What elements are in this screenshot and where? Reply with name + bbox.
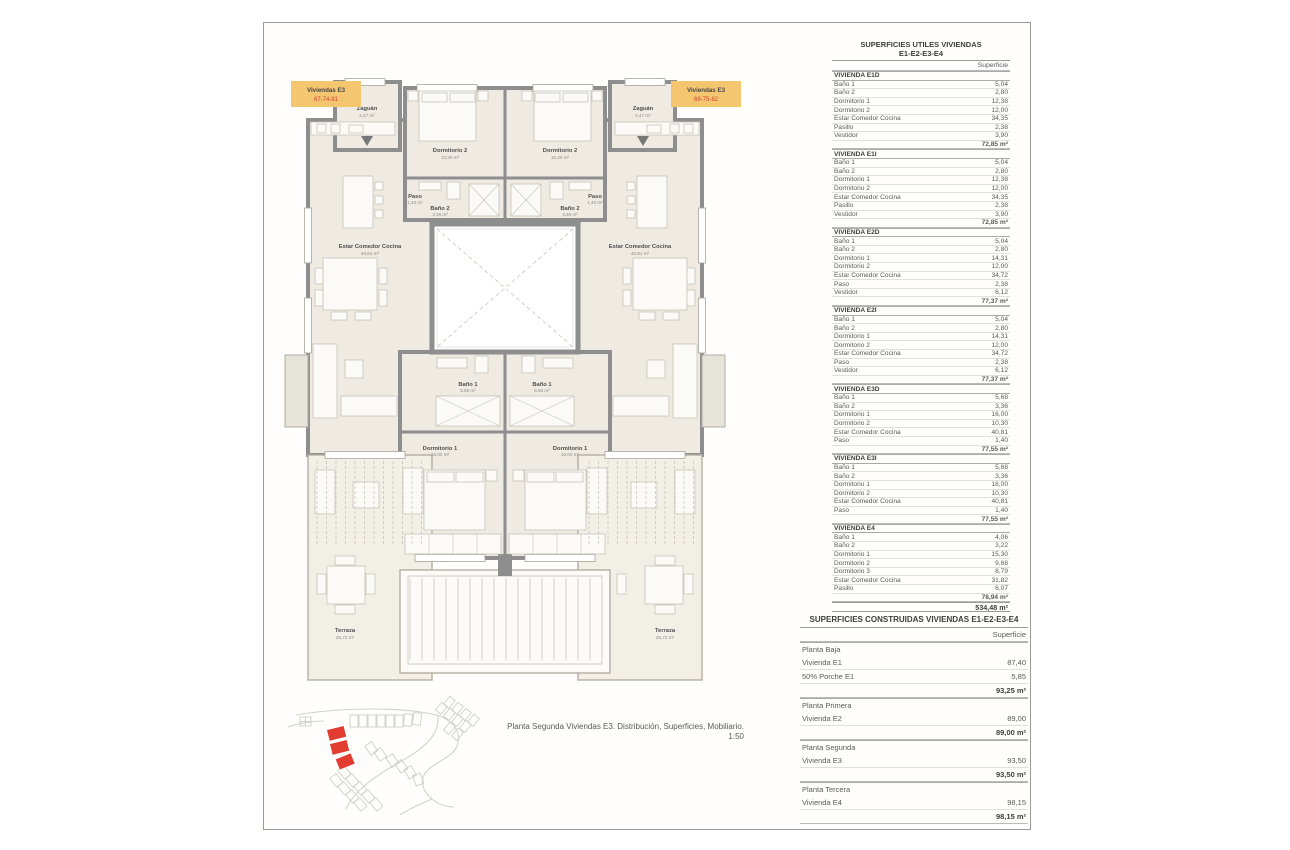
row-label: Vestidor <box>834 211 858 218</box>
svg-text:10,30 m²: 10,30 m² <box>551 155 570 160</box>
row-label: VIVIENDA E1D <box>834 72 880 79</box>
table-row: 78,94 m² <box>832 594 1010 603</box>
table-row: Dormitorio 1 16,00 <box>832 411 1010 420</box>
room-label-estar-right: Estar Comedor Cocina <box>609 244 672 250</box>
row-value: 12,00 <box>991 185 1008 192</box>
table-row: 93,25 m² <box>800 684 1028 698</box>
table-row: Estar Comedor Cocina 34,35 <box>832 115 1010 124</box>
row-value: 34,72 <box>991 350 1008 357</box>
caption: Planta Segunda Viviendas E3. Distribució… <box>498 722 744 742</box>
row-label: Dormitorio 2 <box>834 490 870 497</box>
row-label: Baño 1 <box>834 464 855 471</box>
table-row: Estar Comedor Cocina 40,81 <box>832 498 1010 507</box>
svg-text:40,81 m²: 40,81 m² <box>361 251 380 256</box>
row-label: Dormitorio 2 <box>834 185 870 192</box>
table-row: Vivienda E3 93,50 <box>800 754 1028 768</box>
row-label: Baño 2 <box>834 325 855 332</box>
row-value: 10,30 <box>991 490 1008 497</box>
row-label: Dormitorio 2 <box>834 560 870 567</box>
row-value: 93,50 <box>1007 756 1026 765</box>
row-value: 1,40 <box>995 437 1008 444</box>
row-label: Baño 2 <box>834 246 855 253</box>
table-row: Vivienda E2 89,00 <box>800 712 1028 726</box>
table-row: Paso 1,40 <box>832 437 1010 446</box>
room-label-terraza-left: Terraza <box>335 628 356 634</box>
table-row: Vestidor 6,12 <box>832 367 1010 376</box>
table-row: Dormitorio 1 12,38 <box>832 176 1010 185</box>
table-row: VIVIENDA E3D <box>832 384 1010 394</box>
row-label: Vivienda E4 <box>802 798 842 807</box>
table-row: Dormitorio 1 12,38 <box>832 98 1010 107</box>
row-label: VIVIENDA E3D <box>834 386 880 393</box>
balcony-right <box>702 355 725 427</box>
row-label: Vestidor <box>834 132 858 139</box>
row-label: Dormitorio 2 <box>834 420 870 427</box>
table-row: Baño 2 3,22 <box>832 542 1010 551</box>
row-value: 12,00 <box>991 107 1008 114</box>
built-table-rows: Planta Baja Vivienda E1 87,40 50% Porche… <box>800 642 1028 824</box>
table-row: VIVIENDA E3I <box>832 454 1010 464</box>
row-value: 12,00 <box>991 342 1008 349</box>
table-row: Baño 1 5,68 <box>832 394 1010 403</box>
row-label: Dormitorio 1 <box>834 255 870 262</box>
table-row: Vivienda E1 87,40 <box>800 656 1028 670</box>
table-row: Baño 2 2,80 <box>832 89 1010 98</box>
row-label: Dormitorio 1 <box>834 176 870 183</box>
table-row: VIVIENDA E4 <box>832 524 1010 534</box>
svg-text:2,47 m²: 2,47 m² <box>635 113 651 118</box>
row-value: 4,06 <box>995 534 1008 541</box>
site-highlight-buildings <box>327 726 355 770</box>
row-value: 6,07 <box>995 585 1008 592</box>
site-plan-thumbnail <box>288 695 480 815</box>
row-value: 89,00 m² <box>996 728 1026 737</box>
row-value: 31,82 <box>991 577 1008 584</box>
svg-text:2,47 m²: 2,47 m² <box>359 113 375 118</box>
table-row: Dormitorio 2 12,00 <box>832 341 1010 350</box>
row-label: Paso <box>834 437 849 444</box>
row-value: 93,50 m² <box>996 770 1026 779</box>
table-row: Dormitorio 2 12,00 <box>832 263 1010 272</box>
row-label: Paso <box>834 359 849 366</box>
table-row: Baño 2 3,36 <box>832 403 1010 412</box>
table-row: Dormitorio 1 15,30 <box>832 551 1010 560</box>
row-label: Vivienda E2 <box>802 714 842 723</box>
svg-text:Viviendas E3: Viviendas E3 <box>307 87 346 94</box>
svg-text:26,72 m²: 26,72 m² <box>656 635 675 640</box>
table-row: 98,15 m² <box>800 810 1028 824</box>
table-row: Estar Comedor Cocina 40,81 <box>832 428 1010 437</box>
row-label: Dormitorio 1 <box>834 98 870 105</box>
room-label-estar-left: Estar Comedor Cocina <box>339 244 402 250</box>
row-value: 98,15 m² <box>996 812 1026 821</box>
row-label: Vivienda E3 <box>802 756 842 765</box>
balcony-left <box>285 355 308 427</box>
useful-table-rows: VIVIENDA E1D Baño 1 5,04 Baño 2 2,80 Dor… <box>832 71 1010 612</box>
table-row: Dormitorio 2 12,00 <box>832 185 1010 194</box>
table-row: Vestidor 6,12 <box>832 289 1010 298</box>
row-label: Baño 1 <box>834 534 855 541</box>
room-label-dormitorio2-right: Dormitorio 2 <box>543 148 577 154</box>
row-value: 5,04 <box>995 159 1008 166</box>
table-row: Paso 1,40 <box>832 507 1010 516</box>
row-label: Baño 1 <box>834 238 855 245</box>
row-value: 93,25 m² <box>996 686 1026 695</box>
room-label-terraza-right: Terraza <box>655 628 676 634</box>
floor-plan: Zaguán 2,47 m² Zaguán 2,47 m² Dormitorio… <box>265 58 745 683</box>
built-table-col-header: Superficie <box>800 628 1028 642</box>
table-row: 77,55 m² <box>832 446 1010 455</box>
row-label: Paso <box>834 507 849 514</box>
row-value: 3,90 <box>995 132 1008 139</box>
table-row: VIVIENDA E1D <box>832 71 1010 81</box>
row-value: 34,35 <box>991 194 1008 201</box>
row-value: 5,04 <box>995 238 1008 245</box>
table-row: Planta Segunda <box>800 740 1028 754</box>
row-value: 72,85 m² <box>982 141 1008 148</box>
row-value: 8,79 <box>995 568 1008 575</box>
row-label: Vivienda E1 <box>802 658 842 667</box>
row-value: 89,00 <box>1007 714 1026 723</box>
table-row: 77,37 m² <box>832 297 1010 306</box>
row-label: Dormitorio 2 <box>834 107 870 114</box>
row-label: VIVIENDA E3I <box>834 455 877 462</box>
table-row: Dormitorio 2 9,68 <box>832 559 1010 568</box>
row-value: 2,80 <box>995 246 1008 253</box>
row-value: 2,38 <box>995 281 1008 288</box>
row-value: 534,48 m² <box>975 603 1008 612</box>
row-value: 14,31 <box>991 333 1008 340</box>
table-row: Estar Comedor Cocina 34,72 <box>832 350 1010 359</box>
row-value: 16,00 <box>991 411 1008 418</box>
table-row: Baño 2 2,80 <box>832 168 1010 177</box>
row-value: 15,30 <box>991 551 1008 558</box>
row-label: Pasillo <box>834 585 853 592</box>
table-row: Estar Comedor Cocina 31,82 <box>832 576 1010 585</box>
row-value: 3,36 <box>995 473 1008 480</box>
row-label: VIVIENDA E4 <box>834 525 875 532</box>
row-value: 12,38 <box>991 98 1008 105</box>
unit-label-right: Viviendas E3 68-75-82 <box>671 81 741 107</box>
svg-text:16,00 m²: 16,00 m² <box>431 452 450 457</box>
table-row: Dormitorio 1 16,00 <box>832 481 1010 490</box>
row-value: 40,81 <box>991 429 1008 436</box>
row-value: 34,35 <box>991 115 1008 122</box>
table-row: Dormitorio 2 10,30 <box>832 490 1010 499</box>
row-label: Vestidor <box>834 367 858 374</box>
row-label: Baño 2 <box>834 473 855 480</box>
row-label: Vestidor <box>834 289 858 296</box>
svg-text:16,00 m²: 16,00 m² <box>561 452 580 457</box>
row-value: 2,38 <box>995 359 1008 366</box>
built-areas-table: SUPERFICIES CONSTRUIDAS VIVIENDAS E1-E2-… <box>800 615 1028 824</box>
row-value: 12,00 <box>991 263 1008 270</box>
table-row: 93,50 m² <box>800 768 1028 782</box>
row-value: 12,38 <box>991 176 1008 183</box>
room-label-zaguan-right: Zaguán <box>633 106 654 112</box>
useful-table-col-header: Superficie <box>832 60 1010 71</box>
row-label: Pasillo <box>834 202 853 209</box>
table-row: Pasillo 2,38 <box>832 202 1010 211</box>
useful-table-title-line1: SUPERFICIES UTILES VIVIENDAS <box>832 40 1010 49</box>
table-row: Planta Primera <box>800 698 1028 712</box>
row-value: 87,40 <box>1007 658 1026 667</box>
row-value: 77,55 m² <box>982 446 1008 453</box>
row-value: 72,85 m² <box>982 219 1008 226</box>
row-label: Dormitorio 1 <box>834 411 870 418</box>
site-buildings <box>300 696 479 811</box>
table-row: Planta Baja <box>800 642 1028 656</box>
row-value: 2,38 <box>995 124 1008 131</box>
row-label: Estar Comedor Cocina <box>834 272 901 279</box>
unit-label-left: Viviendas E3 67-74-81 <box>291 81 361 107</box>
row-label: Planta Baja <box>802 645 840 654</box>
table-row: Vestidor 3,90 <box>832 211 1010 220</box>
row-label: Estar Comedor Cocina <box>834 577 901 584</box>
table-row: Vestidor 3,90 <box>832 132 1010 141</box>
row-value: 77,37 m² <box>982 376 1008 383</box>
row-label: VIVIENDA E2I <box>834 307 877 314</box>
row-value: 78,94 m² <box>982 594 1008 601</box>
table-row: Baño 1 5,04 <box>832 81 1010 90</box>
table-row: Paso 2,38 <box>832 280 1010 289</box>
table-row: Dormitorio 2 10,30 <box>832 420 1010 429</box>
row-label: Planta Segunda <box>802 743 855 752</box>
svg-text:3,36 m²: 3,36 m² <box>432 212 448 217</box>
room-label-dormitorio2-left: Dormitorio 2 <box>433 148 467 154</box>
row-label: Dormitorio 1 <box>834 333 870 340</box>
row-label: Planta Tercera <box>802 785 850 794</box>
row-label: 50% Porche E1 <box>802 672 854 681</box>
table-row: Baño 1 5,04 <box>832 159 1010 168</box>
row-value: 98,15 <box>1007 798 1026 807</box>
row-label: Estar Comedor Cocina <box>834 350 901 357</box>
table-row: Pasillo 6,07 <box>832 585 1010 594</box>
table-row: Estar Comedor Cocina 34,72 <box>832 272 1010 281</box>
row-value: 5,68 <box>995 464 1008 471</box>
table-row: Baño 1 5,68 <box>832 464 1010 473</box>
useful-table-title-line2: E1-E2-E3-E4 <box>832 49 1010 58</box>
svg-text:1,40 m²: 1,40 m² <box>407 200 423 205</box>
table-row: Dormitorio 1 14,31 <box>832 333 1010 342</box>
caption-scale: 1:50 <box>498 732 744 742</box>
row-label: Baño 2 <box>834 89 855 96</box>
row-value: 6,12 <box>995 289 1008 296</box>
svg-text:67-74-81: 67-74-81 <box>314 97 339 103</box>
row-value: 9,68 <box>995 560 1008 567</box>
row-label: Pasillo <box>834 124 853 131</box>
row-label: Paso <box>834 281 849 288</box>
table-row: 77,37 m² <box>832 376 1010 385</box>
caption-title: Planta Segunda Viviendas E3. Distribució… <box>498 722 744 732</box>
row-label: Planta Primera <box>802 701 852 710</box>
row-label: Baño 1 <box>834 81 855 88</box>
row-label: Estar Comedor Cocina <box>834 115 901 122</box>
table-row: Estar Comedor Cocina 34,35 <box>832 193 1010 202</box>
table-row: Dormitorio 2 12,00 <box>832 106 1010 115</box>
svg-text:26,72 m²: 26,72 m² <box>336 635 355 640</box>
row-label: Estar Comedor Cocina <box>834 498 901 505</box>
row-value: 5,68 <box>995 394 1008 401</box>
row-value: 16,00 <box>991 481 1008 488</box>
row-label: VIVIENDA E2D <box>834 229 880 236</box>
row-label: Dormitorio 3 <box>834 568 870 575</box>
row-label: Baño 2 <box>834 542 855 549</box>
table-row: Planta Tercera <box>800 782 1028 796</box>
row-value: 2,38 <box>995 202 1008 209</box>
table-row: Dormitorio 1 14,31 <box>832 254 1010 263</box>
table-row: Baño 2 2,80 <box>832 324 1010 333</box>
row-label: Baño 1 <box>834 159 855 166</box>
row-label: Baño 2 <box>834 403 855 410</box>
svg-text:10,30 m²: 10,30 m² <box>441 155 460 160</box>
row-value: 34,72 <box>991 272 1008 279</box>
row-value: 5,04 <box>995 316 1008 323</box>
row-label: VIVIENDA E1I <box>834 151 877 158</box>
table-row: 77,55 m² <box>832 515 1010 524</box>
row-value: 77,55 m² <box>982 516 1008 523</box>
table-row: 50% Porche E1 5,85 <box>800 670 1028 684</box>
row-value: 6,12 <box>995 367 1008 374</box>
row-label: Baño 1 <box>834 316 855 323</box>
row-value: 3,36 <box>995 403 1008 410</box>
row-value: 5,85 <box>1011 672 1026 681</box>
row-value: 2,80 <box>995 89 1008 96</box>
table-row: 89,00 m² <box>800 726 1028 740</box>
useful-areas-table: SUPERFICIES UTILES VIVIENDAS E1-E2-E3-E4… <box>832 40 1010 612</box>
table-row: 72,85 m² <box>832 141 1010 150</box>
svg-text:1,40 m²: 1,40 m² <box>587 200 603 205</box>
row-value: 5,04 <box>995 81 1008 88</box>
svg-text:3,36 m²: 3,36 m² <box>562 212 578 217</box>
table-row: Pasillo 2,38 <box>832 124 1010 133</box>
row-value: 2,80 <box>995 325 1008 332</box>
row-label: Dormitorio 1 <box>834 551 870 558</box>
row-value: 2,80 <box>995 168 1008 175</box>
table-row: Paso 2,38 <box>832 359 1010 368</box>
svg-text:40,81 m²: 40,81 m² <box>631 251 650 256</box>
row-value: 3,22 <box>995 542 1008 549</box>
table-row: VIVIENDA E1I <box>832 149 1010 159</box>
svg-text:68-75-82: 68-75-82 <box>694 97 719 103</box>
row-value: 40,81 <box>991 498 1008 505</box>
table-row: VIVIENDA E2I <box>832 306 1010 316</box>
svg-text:5,68 m²: 5,68 m² <box>534 388 550 393</box>
svg-text:5,68 m²: 5,68 m² <box>460 388 476 393</box>
row-label: Estar Comedor Cocina <box>834 429 901 436</box>
row-label: Estar Comedor Cocina <box>834 194 901 201</box>
table-row: Baño 2 2,80 <box>832 246 1010 255</box>
row-label: Dormitorio 2 <box>834 263 870 270</box>
row-value: 10,30 <box>991 420 1008 427</box>
table-row: Baño 1 4,06 <box>832 533 1010 542</box>
svg-text:Viviendas E3: Viviendas E3 <box>687 87 726 94</box>
row-value: 14,31 <box>991 255 1008 262</box>
row-label: Baño 2 <box>834 168 855 175</box>
table-row: VIVIENDA E2D <box>832 228 1010 238</box>
table-row: 534,48 m² <box>832 602 1010 612</box>
table-row: 72,85 m² <box>832 219 1010 228</box>
table-row: Dormitorio 3 8,79 <box>832 568 1010 577</box>
table-row: Vivienda E4 98,15 <box>800 796 1028 810</box>
built-table-title: SUPERFICIES CONSTRUIDAS VIVIENDAS E1-E2-… <box>800 615 1028 628</box>
table-row: Baño 2 3,36 <box>832 472 1010 481</box>
row-value: 77,37 m² <box>982 298 1008 305</box>
table-row: Baño 1 5,04 <box>832 237 1010 246</box>
row-label: Dormitorio 2 <box>834 342 870 349</box>
row-value: 3,90 <box>995 211 1008 218</box>
table-row: Baño 1 5,04 <box>832 316 1010 325</box>
row-label: Dormitorio 1 <box>834 481 870 488</box>
row-label: Baño 1 <box>834 394 855 401</box>
row-value: 1,40 <box>995 507 1008 514</box>
